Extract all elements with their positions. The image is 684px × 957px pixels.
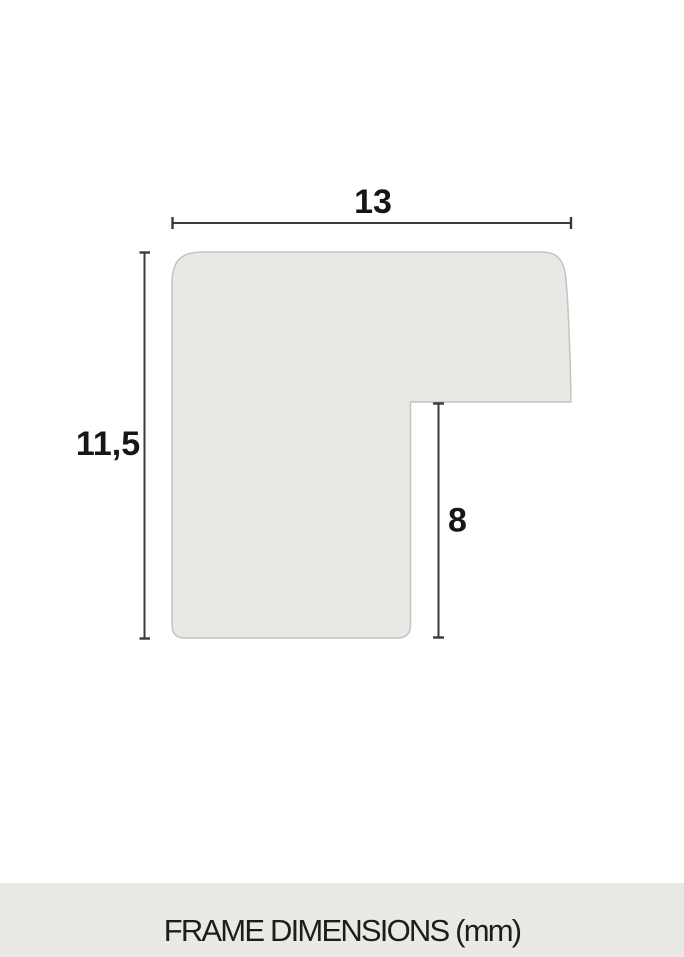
svg-text:13: 13 [354, 183, 392, 221]
svg-text:8: 8 [448, 502, 467, 540]
svg-text:11,5: 11,5 [76, 425, 140, 463]
svg-text:FRAME DIMENSIONS (mm): FRAME DIMENSIONS (mm) [164, 913, 521, 948]
